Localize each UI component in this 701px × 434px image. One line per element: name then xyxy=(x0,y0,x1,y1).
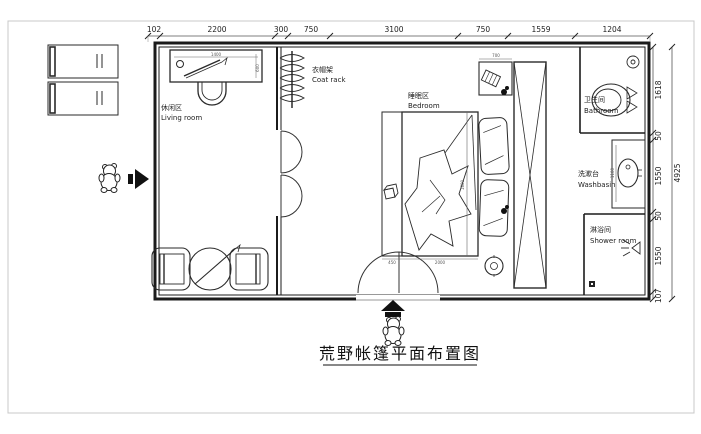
floor-plan-drawing: 102 2200 300 750 3100 750 1559 1204 1618… xyxy=(0,0,701,434)
dim-label: 1550 xyxy=(654,246,663,265)
interior-door-leaves xyxy=(281,131,302,217)
dim-label: 300 xyxy=(274,25,289,34)
bathroom-label-cn: 卫生间 xyxy=(584,95,605,104)
room-label-shower: 淋浴间 Shower room xyxy=(590,225,637,245)
desk-depth-label: 600 xyxy=(255,64,260,72)
dim-label: 1559 xyxy=(531,25,550,34)
top-dimension-chain xyxy=(145,33,653,42)
dim-label: 750 xyxy=(476,25,491,34)
washbasin-counter xyxy=(612,140,645,208)
sun-loungers xyxy=(48,45,118,115)
floor-plan-page: 102 2200 300 750 3100 750 1559 1204 1618… xyxy=(0,0,701,434)
room-label-bedroom: 睡眠区 Bedroom xyxy=(408,92,440,110)
blanket xyxy=(405,150,471,250)
right-dimension-labels: 1618 50 1550 50 1550 107 4925 xyxy=(654,80,682,303)
entry-arrow-left-icon xyxy=(128,169,149,189)
desk-chair xyxy=(198,82,226,105)
armchair-left xyxy=(152,248,190,290)
bear-icon xyxy=(383,317,404,346)
floor-drain-square-icon xyxy=(589,281,595,287)
washbasin-label-en: Washbasin xyxy=(578,181,616,189)
stool-icon xyxy=(485,255,503,277)
bear-icon xyxy=(99,164,120,193)
dim-label: 1618 xyxy=(654,80,663,99)
round-table xyxy=(189,245,240,290)
drawing-title: 荒野帐篷平面布置图 xyxy=(319,344,481,363)
pillow-top xyxy=(479,117,510,174)
shower-label-cn: 淋浴间 xyxy=(590,225,611,234)
armchair-right xyxy=(230,248,268,290)
storage-box-icon xyxy=(384,184,398,199)
bedroom-label-en: Bedroom xyxy=(408,102,440,110)
coat-label-cn: 衣帽架 xyxy=(312,65,333,74)
dim-label: 50 xyxy=(654,211,663,221)
dim-label: 1550 xyxy=(654,166,663,185)
washbasin-label-cn: 洗漱台 xyxy=(578,169,599,178)
top-dimension-labels: 102 2200 300 750 3100 750 1559 1204 xyxy=(147,25,622,34)
dim-label-total: 4925 xyxy=(673,163,682,182)
bedside-bench xyxy=(382,112,402,256)
room-label-coat: 衣帽架 Coat rack xyxy=(312,65,346,84)
coat-rack xyxy=(280,51,304,108)
dim-label: 2200 xyxy=(207,25,226,34)
room-label-living: 休闲区 Living room xyxy=(161,103,202,122)
dim-label: 3100 xyxy=(384,25,403,34)
dim-label: 50 xyxy=(654,131,663,141)
entrance-double-door xyxy=(358,252,438,293)
bathroom-label-en: Bathroom xyxy=(584,107,619,115)
dim-label: 750 xyxy=(304,25,319,34)
bench-dim-label: 450 xyxy=(388,260,396,265)
bed-length-label: 1800 xyxy=(460,179,465,190)
dim-label: 102 xyxy=(147,25,162,34)
living-label-cn: 休闲区 xyxy=(161,103,182,112)
floor-drain-round-icon xyxy=(627,56,639,68)
nightstand-dim-label: 700 xyxy=(492,53,500,58)
coat-label-en: Coat rack xyxy=(312,76,346,84)
basin-dim-label: 1100 xyxy=(610,167,615,178)
bed-width-label: 2000 xyxy=(435,260,446,265)
room-label-bathroom: 卫生间 Bathroom xyxy=(584,95,619,115)
desk-dim-label: 1400 xyxy=(211,52,222,57)
wardrobe xyxy=(514,62,546,288)
nightstand xyxy=(479,62,512,95)
bedroom-label-cn: 睡眠区 xyxy=(408,92,429,100)
dim-label: 107 xyxy=(654,289,663,304)
living-label-en: Living room xyxy=(161,114,202,122)
pillow-bottom xyxy=(479,180,509,237)
dim-label: 1204 xyxy=(602,25,621,34)
